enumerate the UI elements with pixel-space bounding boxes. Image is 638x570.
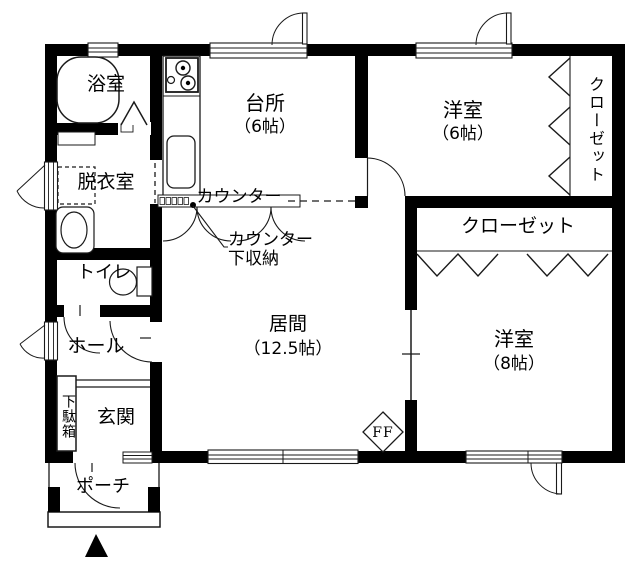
dressing-shelf <box>58 132 95 145</box>
annotation-under-counter-1: カウンター <box>228 231 313 251</box>
entrance-sidelight <box>123 452 152 463</box>
label-ff-heater: FF <box>369 425 397 441</box>
room-label-closet-main: クローゼット <box>436 216 600 238</box>
room-size-bedroom-west: （6帖） <box>411 125 515 145</box>
stove-icon <box>166 58 198 92</box>
living-window <box>208 450 358 464</box>
kitchen-window <box>210 13 307 58</box>
room-size-kitchen: （6帖） <box>213 118 317 138</box>
room-label-bathroom: 浴室 <box>70 74 142 96</box>
room-label-living: 居間 <box>238 314 338 336</box>
sliding-partition <box>402 310 420 400</box>
dressing-window <box>17 162 58 210</box>
room-label-toilet: トイレ <box>70 263 138 284</box>
bedroom-west-door <box>367 158 405 196</box>
room-label-bedroom-east: 洋室 <box>466 328 562 351</box>
room-label-kitchen: 台所 <box>213 92 317 115</box>
room-label-entrance: 玄関 <box>86 407 146 429</box>
label-shoe-cabinet: 下駄箱 <box>56 384 76 448</box>
entrance-step <box>73 380 150 387</box>
bathroom-folding-door <box>119 102 151 135</box>
room-size-bedroom-east: （8帖） <box>466 355 562 375</box>
room-size-living: （12.5帖） <box>228 340 348 360</box>
bathroom-window <box>88 43 118 57</box>
bedroom-east-window <box>466 451 562 494</box>
room-label-closet-side: クローゼット <box>578 62 604 197</box>
room-label-dressing: 脱衣室 <box>64 172 148 194</box>
bedroom-west-window <box>416 13 512 58</box>
room-label-hall: ホール <box>58 336 134 358</box>
room-label-bedroom-west: 洋室 <box>411 99 515 122</box>
kitchen-sink <box>167 136 195 188</box>
kitchen-fixtures <box>155 56 356 247</box>
entrance-marker-icon <box>85 534 108 557</box>
annotation-under-counter-2: 下収納 <box>228 250 279 270</box>
annotation-counter: カウンター <box>186 188 292 208</box>
room-label-porch: ポーチ <box>69 477 137 498</box>
closet-main-fold-door <box>417 251 612 276</box>
closet-side-fold-door <box>549 56 570 196</box>
wash-basin-icon <box>56 207 94 253</box>
floor-plan: 浴室 台所 （6帖） 洋室 （6帖） クローゼット 脱衣室 カウンター カウンタ… <box>0 0 638 570</box>
hall-window <box>20 322 58 360</box>
